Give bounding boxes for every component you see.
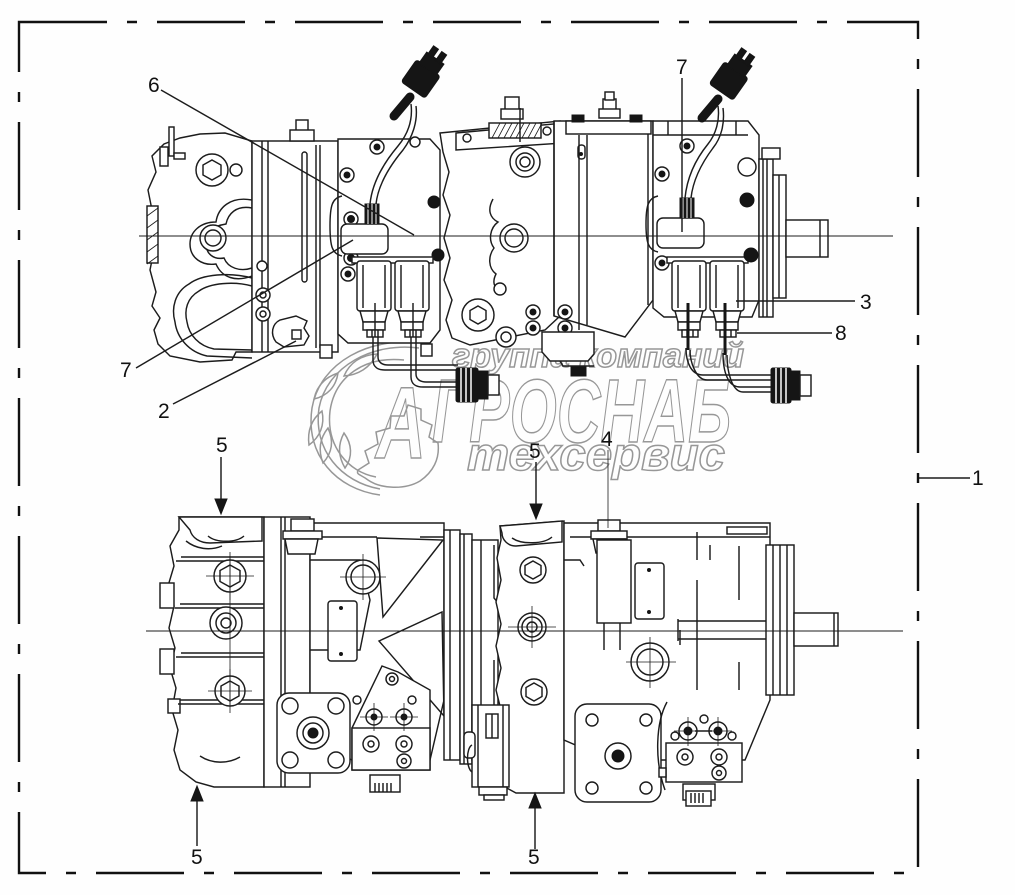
- svg-text:5: 5: [529, 440, 541, 463]
- svg-text:5: 5: [216, 434, 228, 457]
- svg-text:2: 2: [158, 400, 170, 423]
- svg-text:7: 7: [120, 359, 132, 382]
- svg-text:А: А: [374, 366, 426, 480]
- svg-text:1: 1: [972, 467, 984, 490]
- svg-text:5: 5: [528, 846, 540, 869]
- svg-text:3: 3: [860, 291, 872, 314]
- svg-text:4: 4: [601, 428, 613, 451]
- svg-text:7: 7: [676, 56, 688, 79]
- svg-text:5: 5: [191, 846, 203, 869]
- svg-text:техсервис: техсервис: [467, 428, 725, 480]
- svg-text:8: 8: [835, 322, 847, 345]
- svg-text:6: 6: [148, 74, 160, 97]
